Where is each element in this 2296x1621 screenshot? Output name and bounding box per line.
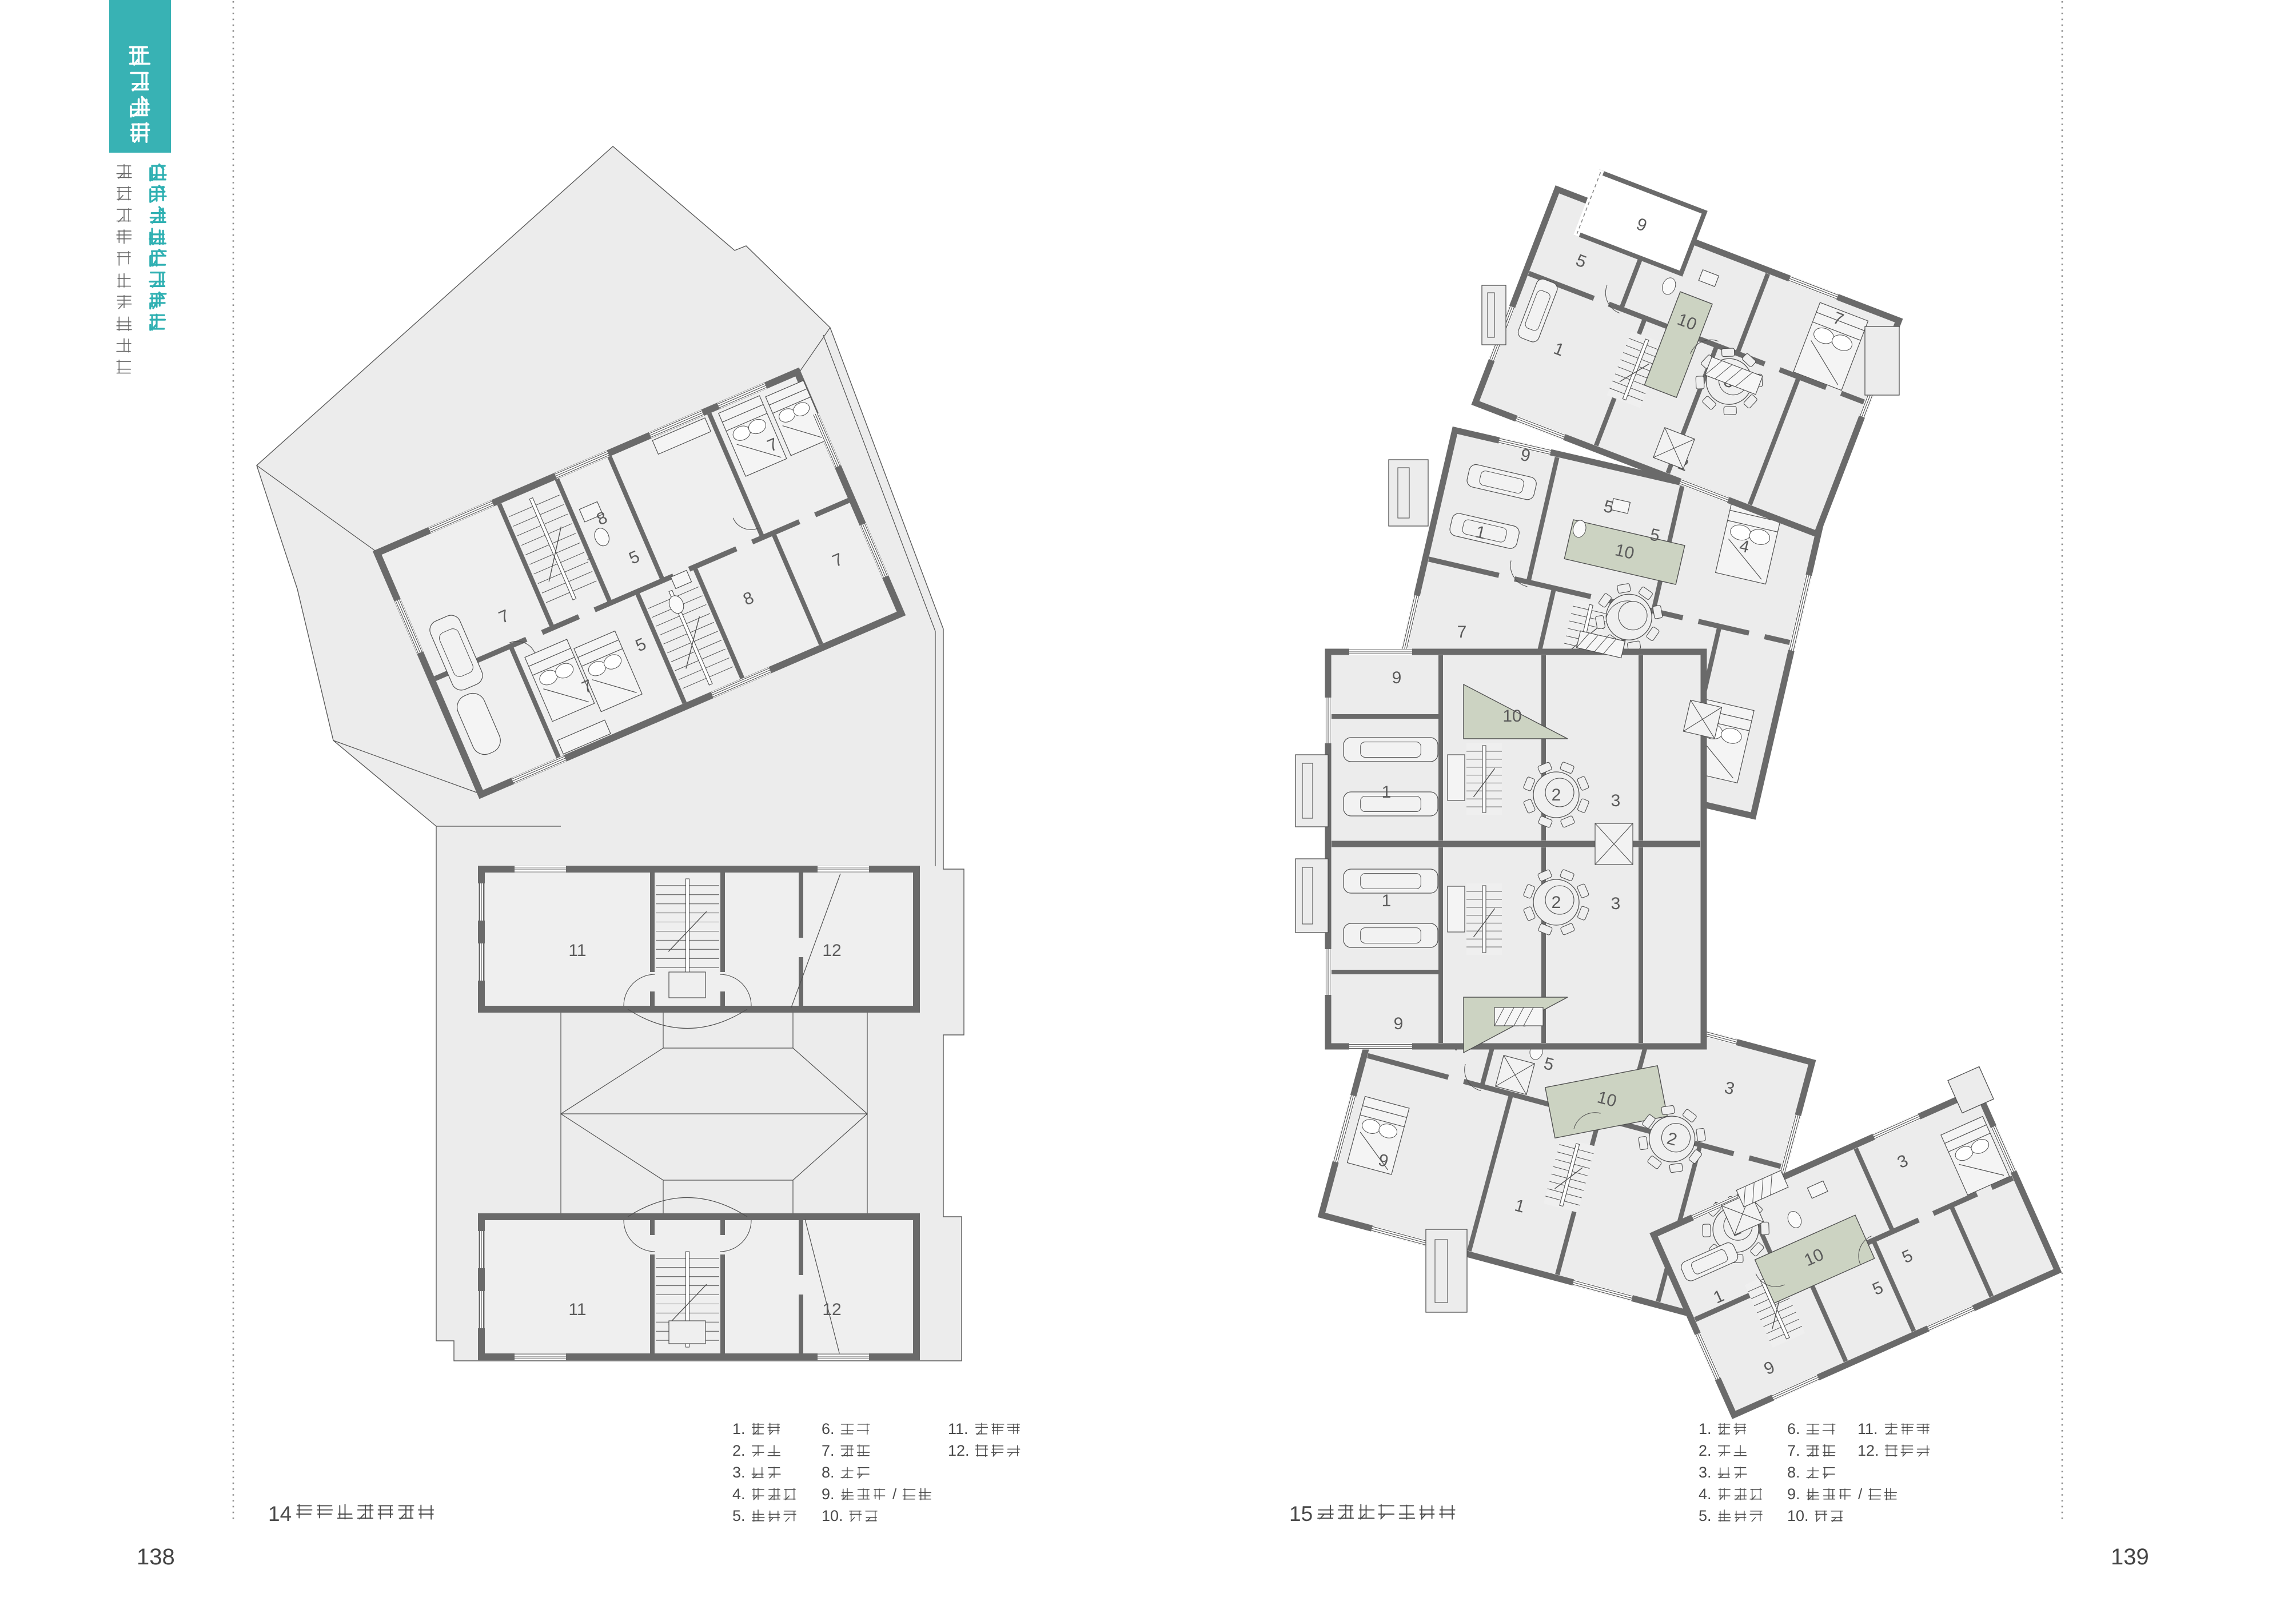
svg-text:1: 1 bbox=[1382, 783, 1392, 802]
svg-text:138: 138 bbox=[137, 1544, 175, 1570]
svg-text:11: 11 bbox=[568, 1300, 586, 1319]
svg-text:12.: 12. bbox=[948, 1442, 970, 1459]
svg-text:9.: 9. bbox=[1787, 1485, 1800, 1503]
svg-text:1: 1 bbox=[1382, 891, 1392, 910]
svg-text:/: / bbox=[1858, 1485, 1863, 1503]
svg-text:6.: 6. bbox=[822, 1420, 835, 1437]
svg-text:2.: 2. bbox=[1699, 1442, 1712, 1459]
svg-text:5.: 5. bbox=[732, 1507, 746, 1524]
svg-text:8.: 8. bbox=[822, 1464, 835, 1481]
svg-text:7.: 7. bbox=[1787, 1442, 1800, 1459]
svg-text:12.: 12. bbox=[1857, 1442, 1879, 1459]
svg-text:6.: 6. bbox=[1787, 1420, 1800, 1437]
svg-text:3: 3 bbox=[1611, 894, 1621, 913]
svg-text:3.: 3. bbox=[1699, 1464, 1712, 1481]
svg-text:1.: 1. bbox=[732, 1420, 746, 1437]
svg-text:3: 3 bbox=[1611, 791, 1621, 810]
svg-text:10.: 10. bbox=[1787, 1507, 1809, 1524]
svg-text:7.: 7. bbox=[822, 1442, 835, 1459]
svg-text:1.: 1. bbox=[1699, 1420, 1712, 1437]
svg-text:11: 11 bbox=[568, 941, 586, 960]
svg-text:4.: 4. bbox=[1699, 1485, 1712, 1503]
svg-text:11.: 11. bbox=[948, 1420, 968, 1437]
svg-text:3.: 3. bbox=[732, 1464, 746, 1481]
svg-text:14: 14 bbox=[268, 1502, 292, 1526]
svg-text:7: 7 bbox=[1457, 623, 1467, 642]
svg-text:10: 10 bbox=[1502, 707, 1521, 726]
svg-text:12: 12 bbox=[822, 941, 841, 960]
svg-text:9.: 9. bbox=[822, 1485, 835, 1503]
svg-text:12: 12 bbox=[822, 1300, 841, 1319]
svg-text:4.: 4. bbox=[732, 1485, 746, 1503]
svg-text:139: 139 bbox=[2111, 1544, 2149, 1570]
svg-text:2: 2 bbox=[1552, 893, 1561, 912]
svg-text:15: 15 bbox=[1289, 1502, 1313, 1526]
svg-text:5.: 5. bbox=[1699, 1507, 1712, 1524]
svg-text:2: 2 bbox=[1552, 786, 1561, 804]
svg-text:/: / bbox=[892, 1485, 897, 1503]
svg-text:2.: 2. bbox=[732, 1442, 746, 1459]
svg-text:11.: 11. bbox=[1857, 1420, 1878, 1437]
svg-text:10.: 10. bbox=[822, 1507, 843, 1524]
svg-text:8.: 8. bbox=[1787, 1464, 1800, 1481]
svg-text:9: 9 bbox=[1394, 1014, 1404, 1033]
svg-text:9: 9 bbox=[1392, 668, 1402, 687]
